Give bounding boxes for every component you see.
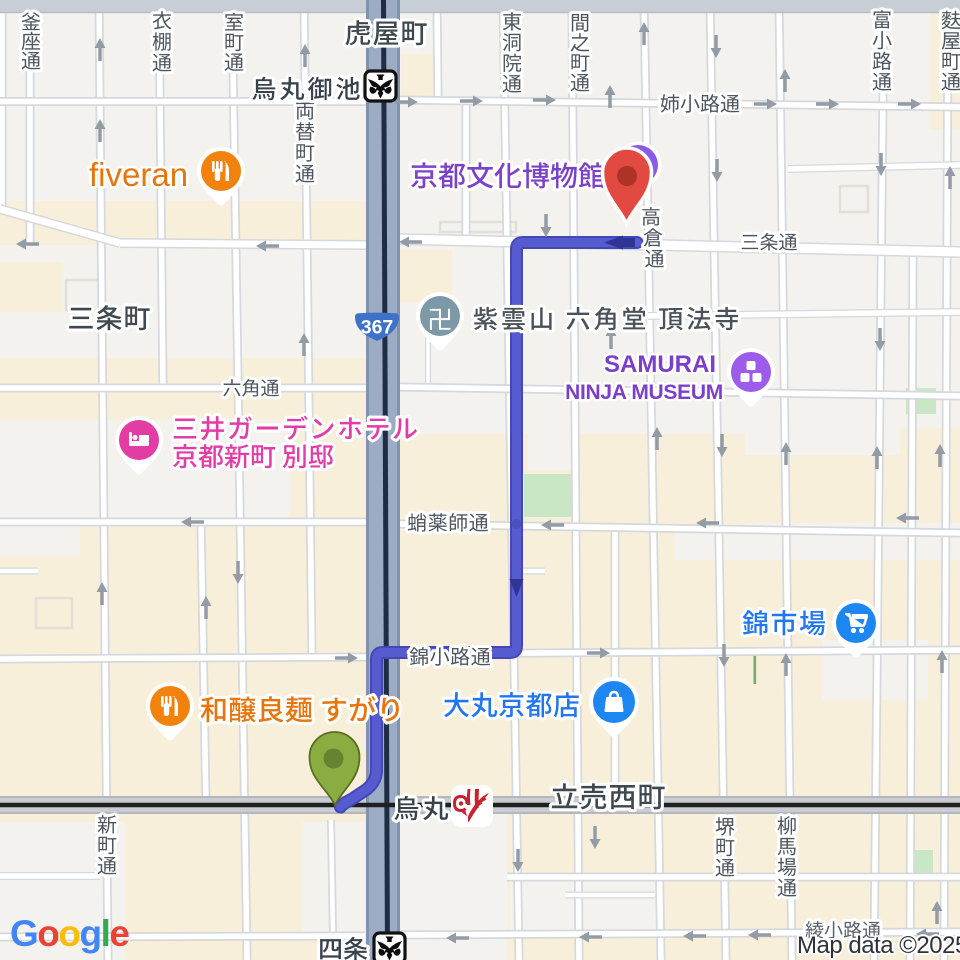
svg-text:SAMURAI: SAMURAI	[604, 351, 716, 378]
svg-text:367: 367	[361, 317, 394, 339]
svg-text:Google: Google	[10, 913, 129, 954]
svg-text:Map data ©2025: Map data ©2025	[797, 932, 960, 959]
svg-text:fiveran: fiveran	[89, 156, 188, 193]
svg-text:NINJA MUSEUM: NINJA MUSEUM	[565, 381, 723, 404]
